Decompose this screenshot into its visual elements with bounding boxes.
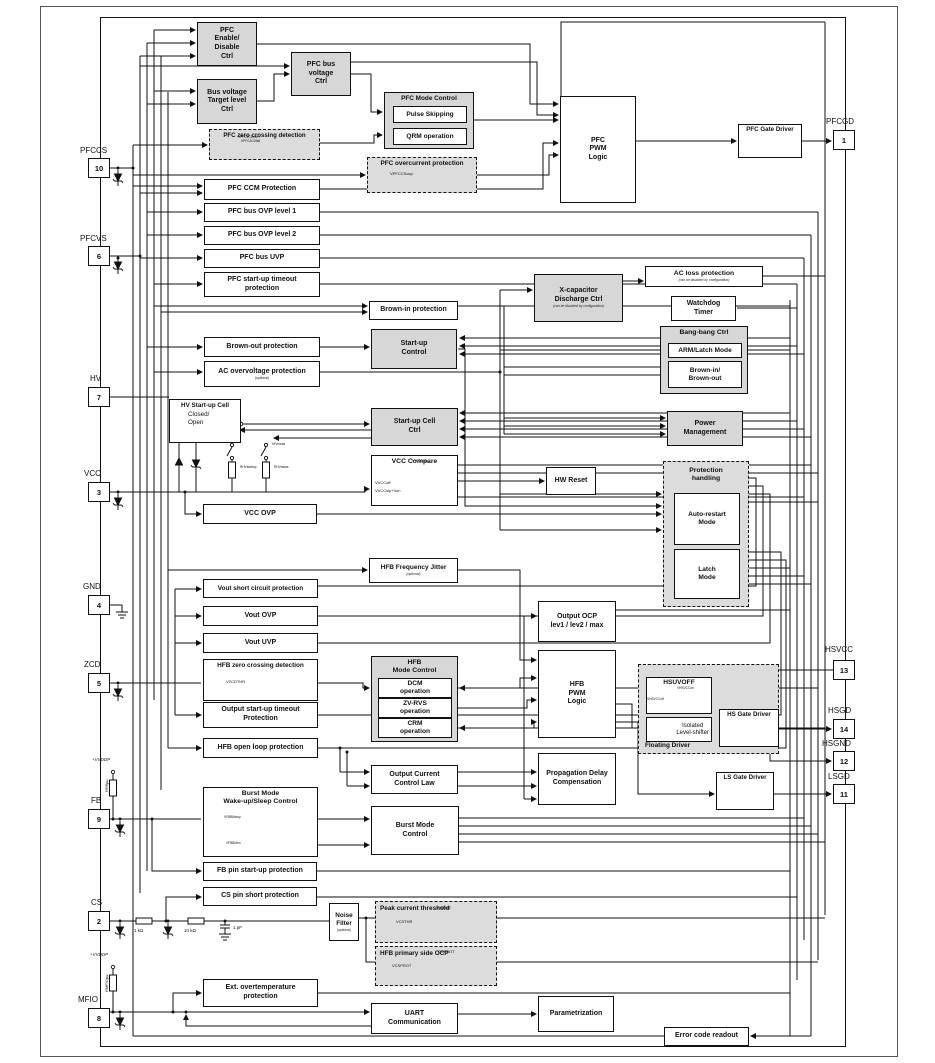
signal-vpfczcd-thresholds: VPFCZCDrise / VPFCZCDfall	[226, 136, 260, 144]
block-pfc-zero-crossing-detection: PFC zero crossing detection	[209, 129, 320, 160]
label: Output Current Control Law	[389, 771, 439, 788]
block-pfc-ccm-protection: PFC CCM Protection	[204, 179, 320, 200]
pin-lsgd: 11	[833, 784, 855, 804]
block-vout-ovp: Vout OVP	[203, 606, 318, 626]
optional-note: (optional)	[406, 572, 420, 576]
block-cs-pin-short-protection: CS pin short protection	[203, 887, 317, 906]
block-protection-handling: Protection handling Auto-restart Mode La…	[663, 461, 749, 607]
label: VCC OVP	[244, 510, 276, 519]
label: Power Management	[684, 420, 727, 437]
part-rhvstartup: RHVstartup	[240, 466, 256, 470]
config-note: (can be disabled by configuration)	[553, 304, 604, 308]
label: PFC Enable/ Disable Ctrl	[215, 27, 240, 61]
label: Output OCP lev1 / lev2 / max	[551, 613, 604, 630]
hv-cell-open: Open	[188, 419, 203, 427]
label: AC loss protection	[674, 270, 734, 278]
block-pfc-mode-control: PFC Mode Control Pulse Skipping QRM oper…	[384, 92, 474, 149]
label: PFC PWM Logic	[589, 137, 608, 163]
label: HFB Frequency Jitter	[381, 564, 447, 572]
label: Bus voltage Target level Ctrl	[207, 89, 247, 115]
block-bus-voltage-target-level-ctrl: Bus voltage Target level Ctrl	[197, 79, 257, 124]
pin-hv: 7	[88, 387, 110, 407]
pin-pfcvs: 6	[88, 246, 110, 266]
block-ac-loss-protection: AC loss protection(can be disabled by co…	[645, 266, 763, 287]
block-hfb-mode-control: HFB Mode Control DCM operation ZV-RVS op…	[371, 656, 458, 742]
pin-label-gnd: GND	[83, 582, 101, 591]
pin-label-hsvcc: HSVCC	[825, 645, 853, 654]
part-ihvmeas: IHVmeas	[272, 443, 285, 447]
title: LS Gate Driver	[717, 774, 773, 782]
signal-vcsthr: VCSTHR	[396, 920, 412, 925]
label: X-capacitor Discharge Ctrl	[555, 287, 603, 304]
pin-mfio: 8	[88, 1008, 110, 1028]
block-power-management: Power Management	[667, 411, 743, 446]
label: PFC CCM Protection	[228, 185, 296, 194]
part-r10k: 10 kΩ	[184, 928, 196, 933]
pin-cs: 2	[88, 911, 110, 931]
part-vddp-mfio: +VVDDP	[90, 952, 108, 957]
part-c1pf: 1 pF	[233, 925, 242, 930]
block-hsuvoff: HSUVOFF	[646, 677, 712, 714]
part-r1k: 1 kΩ	[134, 928, 143, 933]
block-vout-short-circuit-protection: Vout short circuit protection	[203, 579, 318, 598]
block-hs-gate-driver: HS Gate Driver	[719, 709, 779, 747]
title: Burst Mode Wake-up/Sleep Control	[204, 790, 317, 807]
label: UART Communication	[388, 1010, 441, 1027]
pfc-mode-control-title: PFC Mode Control	[385, 95, 473, 103]
part-rhvmeas: RHVmeas	[274, 466, 289, 470]
signal-csprot: CSPROT	[438, 950, 455, 955]
block-pfc-enable-disable-ctrl: PFC Enable/ Disable Ctrl	[197, 22, 257, 66]
optional-note: (optional)	[255, 376, 269, 380]
pin-label-cs: CS	[91, 898, 102, 907]
pin-vcc: 3	[88, 482, 110, 502]
signal-vvccslp-von: VVCCslp+Von	[375, 489, 400, 494]
signal-vhsvccon: VHSVCCon	[677, 687, 694, 691]
optional-note: (optional)	[337, 928, 351, 932]
block-parametrization: Parametrization	[538, 996, 614, 1032]
block-zv-rvs-operation: ZV-RVS operation	[378, 698, 452, 718]
block-vout-uvp: Vout UVP	[203, 633, 318, 653]
block-uart-communication: UART Communication	[371, 1003, 458, 1034]
block-pfc-startup-timeout-protection: PFC start-up timeout protection	[204, 272, 320, 297]
hv-cell-closed: Closed/	[188, 411, 209, 419]
signal-vcsprot: VCSPROT	[392, 964, 411, 969]
block-ext-overtemperature-protection: Ext. overtemperature protection	[203, 979, 318, 1007]
label: FB pin start-up protection	[217, 867, 303, 876]
pin-label-mfio: MFIO	[78, 995, 98, 1004]
block-ac-overvoltage-protection: AC overvoltage protection(optional)	[204, 361, 320, 387]
title: PFC overcurrent protection	[368, 160, 476, 168]
signal-vfbbmen: VFBBMen	[226, 842, 241, 846]
signal-vzcdthr: VZCDTHR	[226, 680, 245, 685]
block-pfc-pwm-logic: PFC PWM Logic	[560, 96, 636, 203]
block-pulse-skipping: Pulse Skipping	[393, 106, 467, 123]
block-vcc-ovp: VCC OVP	[203, 504, 317, 524]
label: Output start-up timeout Protection	[221, 706, 299, 723]
block-hw-reset: HW Reset	[546, 467, 596, 495]
block-pfc-bus-uvp: PFC bus UVP	[204, 249, 320, 268]
part-rfbpu: RFBpu	[105, 780, 110, 792]
signal-vhsvccoff: VHSVCCoff	[647, 698, 664, 702]
label: PFC bus OVP level 1	[228, 208, 296, 217]
block-startup-control: Start-up Control	[371, 329, 457, 369]
block-startup-cell-ctrl: Start-up Cell Ctrl	[371, 408, 458, 446]
block-pfc-overcurrent-protection: PFC overcurrent protection	[367, 157, 477, 193]
pin-label-fb: FB	[91, 796, 101, 805]
label: Brown-in protection	[380, 306, 447, 315]
block-hfb-pwm-logic: HFB PWM Logic	[538, 650, 616, 738]
pin-label-hv: HV	[90, 374, 101, 383]
label: Error code readout	[675, 1032, 738, 1041]
pin-label-zcd: ZCD	[84, 660, 100, 669]
label: Ext. overtemperature protection	[225, 984, 295, 1001]
part-rmfiopu: RMFIOpu	[105, 975, 110, 992]
block-diagram-canvas: PFC Enable/ Disable Ctrl PFC bus voltage…	[0, 0, 935, 1063]
pin-label-vcc: VCC	[84, 469, 101, 478]
signal-vvccon: VVCCon	[412, 459, 428, 464]
block-auto-restart-mode: Auto-restart Mode	[674, 493, 740, 545]
title: HS Gate Driver	[720, 711, 778, 718]
config-note: (can be disabled by configuration)	[679, 278, 730, 282]
pin-hsvcc: 13	[833, 660, 855, 680]
label: CS pin short protection	[221, 892, 299, 901]
label: Noise Filter	[335, 912, 352, 928]
block-brown-out-protection: Brown-out protection	[204, 337, 320, 357]
block-pfc-bus-voltage-ctrl: PFC bus voltage Ctrl	[291, 52, 351, 96]
pin-label-lsgd: LSGD	[828, 772, 850, 781]
block-error-code-readout: Error code readout	[664, 1027, 749, 1046]
label: PFC bus UVP	[240, 254, 285, 263]
block-output-startup-timeout-protection: Output start-up timeout Protection	[203, 702, 318, 728]
label: Propagation Delay Compensation	[546, 770, 607, 787]
label: Vout OVP	[245, 612, 277, 621]
label: HFB open loop protection	[218, 744, 304, 753]
label: HW Reset	[555, 477, 588, 486]
label: PFC bus OVP level 2	[228, 231, 296, 240]
part-vddp-fb: +VVDDP	[92, 757, 110, 762]
pin-label-pfcgd: PFCGD	[826, 117, 854, 126]
block-latch-mode: Latch Mode	[674, 549, 740, 599]
block-watchdog-timer: Watchdog Timer	[671, 296, 736, 321]
block-bang-bang-ctrl: Bang-bang Ctrl ARM/Latch Mode Brown-in/ …	[660, 326, 748, 394]
label: Start-up Cell Ctrl	[394, 418, 436, 435]
title: HFB Mode Control	[372, 659, 457, 676]
label: Start-up Control	[401, 340, 428, 357]
block-noise-filter: Noise Filter(optional)	[329, 903, 359, 941]
pin-label-pfccs: PFCCS	[80, 146, 107, 155]
block-floating-driver: HSUVOFF Isolated Level-shifter HS Gate D…	[638, 664, 779, 754]
block-ls-gate-driver: LS Gate Driver	[716, 772, 774, 810]
title: PFC Gate Driver	[739, 126, 801, 134]
block-peak-current-threshold: Peak current threshold	[375, 901, 497, 943]
pin-fb: 9	[88, 809, 110, 829]
label: Brown-out protection	[226, 343, 297, 352]
block-hfb-zero-crossing-detection: HFB zero crossing detection	[203, 659, 318, 701]
signal-vfbbmwup: VFBBMwup	[224, 816, 241, 820]
block-x-capacitor-discharge-ctrl: X-capacitor Discharge Ctrl(can be disabl…	[534, 274, 623, 322]
pin-pfcgd: 1	[833, 130, 855, 150]
label: Watchdog Timer	[687, 300, 721, 317]
label: Vout short circuit protection	[218, 585, 303, 593]
title: Bang-bang Ctrl	[661, 329, 747, 337]
block-brown-in-protection: Brown-in protection	[369, 301, 458, 320]
pin-hsgnd: 12	[833, 751, 855, 771]
pin-zcd: 5	[88, 673, 110, 693]
pin-label-hsgd: HSGD	[828, 706, 851, 715]
label: Parametrization	[550, 1010, 603, 1019]
block-pfc-bus-ovp-level2: PFC bus OVP level 2	[204, 226, 320, 245]
block-hfb-frequency-jitter: HFB Frequency Jitter(optional)	[369, 558, 458, 583]
label: HFB PWM Logic	[568, 681, 587, 707]
pin-label-pfcvs: PFCVS	[80, 234, 107, 243]
title: HV Start-up Cell	[170, 402, 240, 410]
pin-pfccs: 10	[88, 158, 110, 178]
block-propagation-delay-compensation: Propagation Delay Compensation	[538, 753, 616, 805]
title: Protection handling	[664, 467, 748, 484]
title: HFB zero crossing detection	[204, 662, 317, 670]
block-dcm-operation: DCM operation	[378, 678, 452, 698]
pin-gnd: 4	[88, 595, 110, 615]
block-output-current-control-law: Output Current Control Law	[371, 765, 458, 794]
signal-vpfccsocp: VPFCCSocp	[390, 172, 413, 177]
block-brown-in-brown-out: Brown-in/ Brown-out	[668, 361, 742, 388]
block-qrm-operation: QRM operation	[393, 128, 467, 145]
label: Vout UVP	[245, 639, 276, 648]
pin-label-hsgnd: HSGND	[822, 739, 851, 748]
pin-hsgd: 14	[833, 719, 855, 739]
block-crm-operation: CRM operation	[378, 718, 452, 738]
block-pfc-gate-driver: PFC Gate Driver	[738, 124, 802, 158]
label: PFC start-up timeout protection	[227, 276, 296, 293]
signal-csthr: CSTHR	[437, 906, 451, 911]
block-burst-mode-wake-up-sleep-control: Burst Mode Wake-up/Sleep Control	[203, 787, 318, 857]
block-isolated-level-shifter: Isolated Level-shifter	[646, 717, 712, 742]
block-fb-pin-startup-protection: FB pin start-up protection	[203, 862, 317, 881]
block-arm-latch-mode: ARM/Latch Mode	[668, 343, 742, 358]
floating-driver-label: Floating Driver	[645, 742, 690, 750]
label: PFC bus voltage Ctrl	[307, 61, 335, 87]
label: Burst Mode Control	[396, 822, 435, 839]
signal-vvccoff: VVCCoff	[375, 481, 391, 486]
block-hfb-open-loop-protection: HFB open loop protection	[203, 738, 318, 758]
block-pfc-bus-ovp-level1: PFC bus OVP level 1	[204, 203, 320, 222]
label: AC overvoltage protection	[218, 368, 306, 377]
block-output-ocp: Output OCP lev1 / lev2 / max	[538, 601, 616, 642]
block-burst-mode-control: Burst Mode Control	[371, 806, 459, 855]
block-hv-startup-cell: HV Start-up Cell Closed/ Open	[169, 399, 241, 443]
